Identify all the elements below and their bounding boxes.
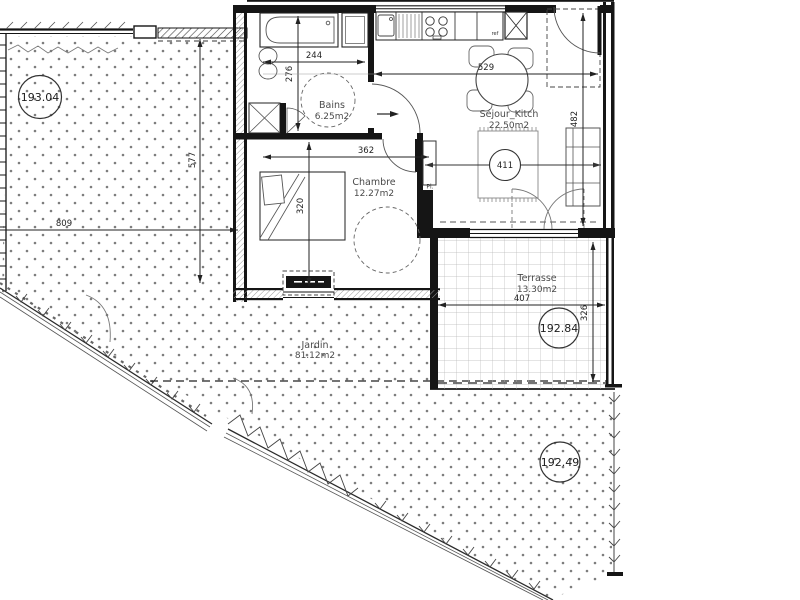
closet-label: Pl. xyxy=(426,184,433,191)
terrasse-label: Terrasse xyxy=(516,273,556,284)
dim-arrow-down xyxy=(296,123,301,131)
dim-text: 482 xyxy=(570,111,580,127)
terrace-wall-foot xyxy=(605,384,622,388)
dim-text: 320 xyxy=(296,198,306,214)
shaft-door-swing xyxy=(287,108,305,133)
wall-fill xyxy=(233,290,440,298)
bay-wall-east xyxy=(578,228,615,238)
entrance-door-swing xyxy=(554,7,600,53)
dim-244: 244 xyxy=(263,51,365,65)
door-swing xyxy=(383,139,416,172)
terrace-east-wall-a xyxy=(606,238,609,386)
left-wall-outer xyxy=(233,13,236,302)
dim-arrow-right xyxy=(590,72,598,77)
bains-chambre-wall xyxy=(236,133,382,140)
round-table xyxy=(476,54,528,106)
arrow-head xyxy=(390,111,399,117)
fence-ticks xyxy=(6,22,125,29)
floorplan-canvas: Jardin 81.12m2 577 809 xyxy=(0,0,800,600)
dim-text: 407 xyxy=(514,294,530,304)
dim-arrow-right xyxy=(357,60,365,65)
dim-529: 529 xyxy=(263,63,598,77)
top-wall-corner xyxy=(233,5,247,13)
terrace-east-wall-b xyxy=(612,238,615,386)
dim-362: 362 xyxy=(263,146,429,160)
kitchen-window xyxy=(376,6,505,12)
level-text: 193.04 xyxy=(21,91,60,104)
jardin-area: 81.12m2 xyxy=(295,351,335,361)
door-swing xyxy=(512,189,552,229)
level-text: 192.84 xyxy=(540,322,579,335)
dim-arrow-left xyxy=(374,72,382,77)
sliding-bay-window xyxy=(470,230,578,238)
chambre-label: Chambre xyxy=(352,177,395,188)
terrace-west-wall xyxy=(430,238,438,389)
level-text: 192.49 xyxy=(541,456,580,469)
dim-text: 326 xyxy=(580,305,590,321)
turning-circle-dashed xyxy=(354,207,420,273)
pillow xyxy=(262,175,285,205)
window-bar-mark xyxy=(318,281,324,283)
room-terrasse: Terrasse 13.30m2 407 326 192.84 xyxy=(438,238,606,389)
dim-text: 362 xyxy=(358,146,374,156)
dim-text: 244 xyxy=(306,51,322,61)
chambre-south-wall xyxy=(233,271,440,301)
chambre-door xyxy=(383,139,418,172)
bains-door-swing xyxy=(372,84,420,133)
bains-sejour-wall xyxy=(368,13,374,82)
bay-wall-west xyxy=(417,228,470,238)
chambre-area: 12.27m2 xyxy=(354,189,394,199)
shaft-wall xyxy=(280,103,286,133)
right-wall-outer xyxy=(611,2,615,232)
window-bar-mark xyxy=(294,281,302,283)
dim-text: 809 xyxy=(56,219,72,229)
entrance-door-leaf xyxy=(598,6,602,55)
window-hole xyxy=(283,288,334,301)
wall-line xyxy=(233,298,440,300)
sejour-area: 22.50m2 xyxy=(489,121,529,131)
jardin-label: Jardin xyxy=(300,340,328,351)
door-leaf xyxy=(415,139,418,172)
bains-area: 6.25m2 xyxy=(315,112,350,122)
entry-flow-arrow xyxy=(377,111,399,117)
top-wall-west xyxy=(247,5,376,13)
bains-label: Bains xyxy=(319,100,345,111)
rug-fringe-bottom xyxy=(480,198,536,202)
kitchen-counter: ref xyxy=(376,12,527,40)
room-chambre: Chambre 12.27m2 362 320 xyxy=(260,139,429,286)
dim-320: 320 xyxy=(296,142,312,286)
closet-lower xyxy=(423,190,433,230)
left-wall-inner xyxy=(244,13,247,302)
dim-arrow-up xyxy=(581,13,586,21)
dining-set xyxy=(467,46,533,112)
fence-pillar xyxy=(134,26,156,38)
bathtub xyxy=(260,13,338,47)
closet-upper xyxy=(423,141,436,185)
dim-arrow-up xyxy=(307,142,312,150)
dim-text: 577 xyxy=(188,152,198,168)
dim-text: 411 xyxy=(497,161,513,171)
dim-arrow-left xyxy=(263,155,271,160)
hedge-foot xyxy=(607,572,623,576)
fridge-label: ref xyxy=(492,31,499,37)
left-wall-fill xyxy=(236,13,244,302)
right-wall-inner xyxy=(603,2,606,232)
washbasin xyxy=(259,63,277,79)
sejour-label: Séjour_Kitch xyxy=(480,109,539,120)
wall-line xyxy=(233,288,440,290)
floorplan-svg: Jardin 81.12m2 577 809 xyxy=(0,0,800,600)
dim-text: 529 xyxy=(478,63,494,73)
roof-overhang xyxy=(247,0,614,2)
